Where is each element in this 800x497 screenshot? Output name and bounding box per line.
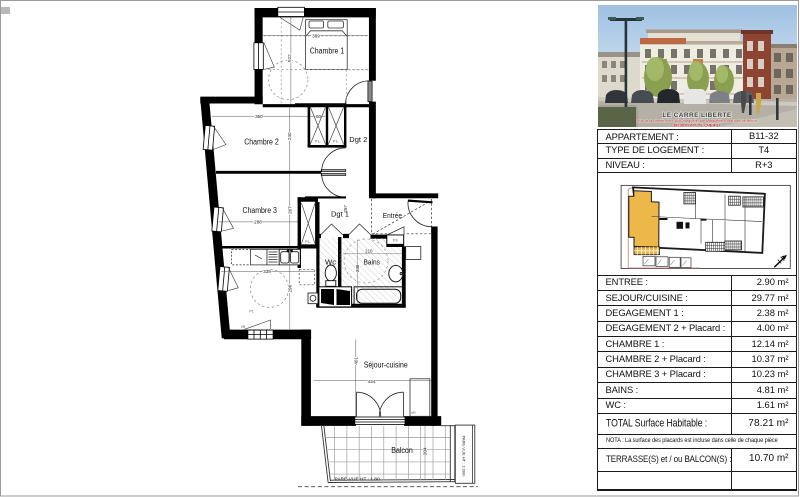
svg-text:240: 240 — [287, 132, 292, 140]
svg-text:P L.: P L. — [333, 140, 339, 144]
svg-text:Chambre 3: Chambre 3 — [242, 206, 277, 215]
svg-text:38230 PONT DE CHERUY: 38230 PONT DE CHERUY — [673, 122, 721, 127]
svg-text:210: 210 — [365, 248, 373, 253]
svg-text:296: 296 — [287, 284, 292, 292]
svg-text:339: 339 — [263, 269, 271, 274]
svg-text:P L.: P L. — [305, 240, 311, 244]
svg-text:Dgt 2: Dgt 2 — [349, 135, 367, 144]
svg-text:257: 257 — [343, 205, 348, 213]
svg-text:Balcon: Balcon — [391, 446, 413, 455]
svg-text:VR: VR — [411, 411, 416, 415]
svg-text:LE CARRE LIBERTE: LE CARRE LIBERTE — [662, 112, 731, 119]
svg-text:Bains: Bains — [363, 258, 380, 267]
svg-text:F.S: F.S — [393, 239, 398, 243]
svg-text:401: 401 — [353, 357, 358, 365]
svg-text:350: 350 — [255, 114, 263, 119]
svg-text:PARE-VUE HT : 2.00m: PARE-VUE HT : 2.00m — [462, 436, 467, 478]
svg-text:PARE-VUE HT : 1.80: PARE-VUE HT : 1.80 — [335, 476, 380, 482]
svg-text:Entrée.: Entrée. — [383, 211, 404, 220]
svg-text:P1: P1 — [249, 310, 253, 314]
svg-text:Séjour-cuisine: Séjour-cuisine — [364, 361, 408, 370]
svg-text:267: 267 — [287, 206, 292, 214]
svg-text:VR: VR — [241, 325, 246, 329]
svg-text:389: 389 — [312, 33, 320, 38]
svg-text:288: 288 — [254, 220, 262, 225]
svg-text:522: 522 — [287, 54, 292, 62]
svg-text:Chambre 2: Chambre 2 — [244, 138, 279, 147]
svg-text:434: 434 — [368, 379, 376, 384]
svg-text:Chambre 1: Chambre 1 — [310, 47, 345, 56]
svg-text:P L.: P L. — [315, 140, 321, 144]
svg-text:Wc: Wc — [325, 258, 336, 267]
